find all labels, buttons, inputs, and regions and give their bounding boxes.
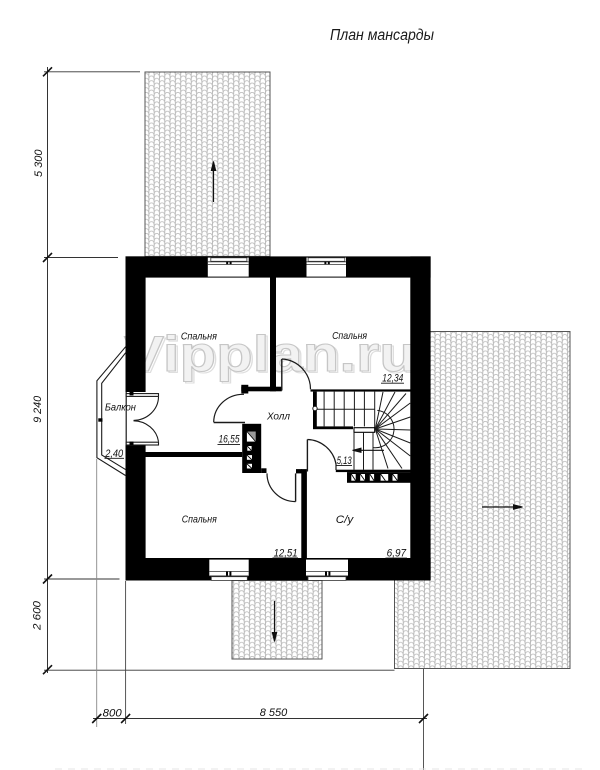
- svg-text:12,34: 12,34: [382, 372, 403, 384]
- svg-text:Балкон: Балкон: [105, 403, 136, 414]
- svg-text:Холл: Холл: [266, 411, 290, 423]
- svg-text:800: 800: [103, 708, 123, 720]
- svg-text:9 240: 9 240: [32, 395, 44, 423]
- svg-text:Спальня: Спальня: [181, 331, 217, 343]
- svg-text:2 600: 2 600: [32, 600, 44, 631]
- svg-text:С/у: С/у: [336, 514, 355, 526]
- svg-text:8 550: 8 550: [260, 707, 288, 719]
- svg-text:5 300: 5 300: [33, 149, 45, 177]
- svg-text:Спальня: Спальня: [182, 514, 217, 526]
- svg-text:План мансарды: План мансарды: [330, 27, 435, 44]
- svg-text:Спальня: Спальня: [332, 330, 367, 342]
- svg-text:16,55: 16,55: [219, 434, 241, 446]
